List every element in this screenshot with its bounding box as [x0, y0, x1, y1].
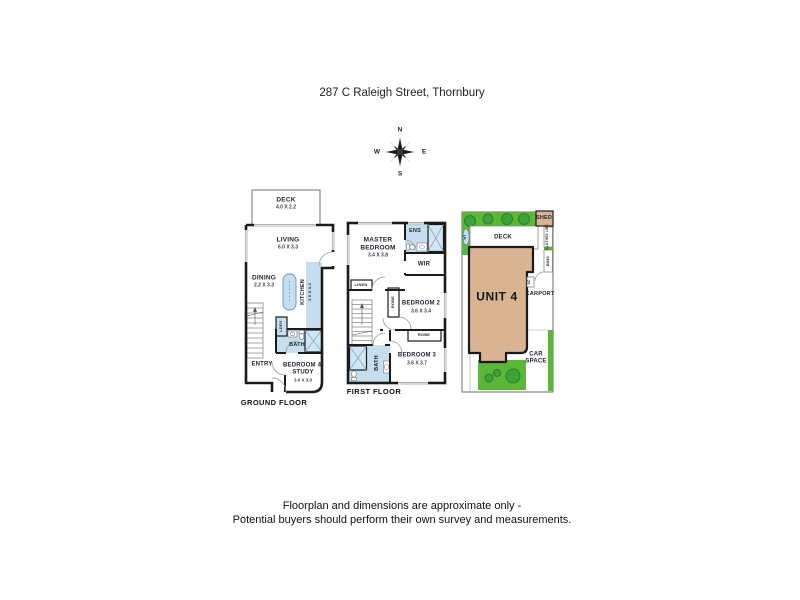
compass-south-label: S [398, 171, 402, 178]
site-shed-label: SHED [536, 215, 552, 221]
ff-master-label-line2: BEDROOM [360, 244, 395, 251]
ff-robe2-label: ROBE [391, 296, 395, 308]
ff-bedroom2-dims: 3.6 X 3.4 [411, 309, 431, 315]
floorplan-page: 287 C Raleigh Street, Thornbury N S E W [0, 0, 800, 600]
gf-bedroom4-label-line1: BEDROOM 4/ [283, 363, 323, 370]
ff-bedroom3-dims: 3.6 X 3.7 [407, 361, 427, 367]
ff-robe3-label: ROBE [418, 333, 430, 337]
site-ac-label: AC [528, 279, 532, 284]
ground-floor-title: GROUND FLOOR [241, 399, 307, 407]
gf-living-label: LIVING [277, 236, 300, 243]
site-bins-label: BINS [546, 256, 550, 266]
ff-wir-label: WIR [418, 262, 430, 269]
first-floor-title: FIRST FLOOR [347, 388, 401, 396]
ff-bath-label: BATH [374, 355, 380, 371]
gf-kitchen-label: KITCHEN [300, 279, 306, 305]
ground-floor-plan [240, 185, 340, 410]
compass-north-label: N [398, 127, 403, 134]
site-carport-label: CARPORT [525, 291, 554, 297]
site-unit4-label: UNIT 4 [476, 290, 518, 303]
ff-bedroom2-label: BEDROOM 2 [402, 301, 440, 308]
gf-deck-label: DECK [276, 196, 295, 203]
gf-bedroom4-dims: 3.0 X 3.0 [294, 379, 312, 384]
gf-bath-label: BATH [289, 342, 305, 348]
first-floor-plan [345, 215, 450, 400]
compass-east-label: E [422, 149, 426, 156]
gf-bedroom4-label-line2: STUDY [292, 370, 313, 377]
ff-master-label-line1: MASTER [364, 236, 393, 243]
compass-rose-icon [382, 134, 418, 170]
compass-west-label: W [374, 149, 380, 156]
disclaimer-line1: Floorplan and dimensions are approximate… [283, 500, 521, 512]
page-title: 287 C Raleigh Street, Thornbury [319, 87, 484, 99]
ff-bedroom3-label: BEDROOM 3 [398, 353, 436, 360]
site-clothes-line-label: CLOTHES LINE [546, 224, 550, 250]
gf-dining-label: DINING [252, 274, 276, 281]
ff-linen-label: LINEN [355, 283, 368, 287]
gf-kitchen-dims: 2.0 X 3.3 [308, 283, 312, 301]
gf-living-dims: 6.0 X 3.3 [278, 245, 298, 251]
disclaimer-line2: Potential buyers should perform their ow… [233, 514, 572, 526]
gf-entry-label: ENTRY [251, 362, 272, 369]
site-car-space-label-line2: SPACE [525, 359, 546, 366]
gf-dining-dims: 2.2 X 3.3 [254, 283, 274, 289]
gf-deck-dims: 4.0 X 2.2 [276, 205, 296, 211]
ff-master-dims: 3.4 X 3.8 [368, 253, 388, 259]
ff-ensuite-label: ENS [409, 228, 421, 234]
site-water-tank-label: WT [464, 234, 468, 239]
site-car-space-label-line1: CAR [529, 352, 543, 359]
gf-laundry-label: LDRY [279, 320, 283, 332]
site-deck-label: DECK [494, 235, 512, 242]
